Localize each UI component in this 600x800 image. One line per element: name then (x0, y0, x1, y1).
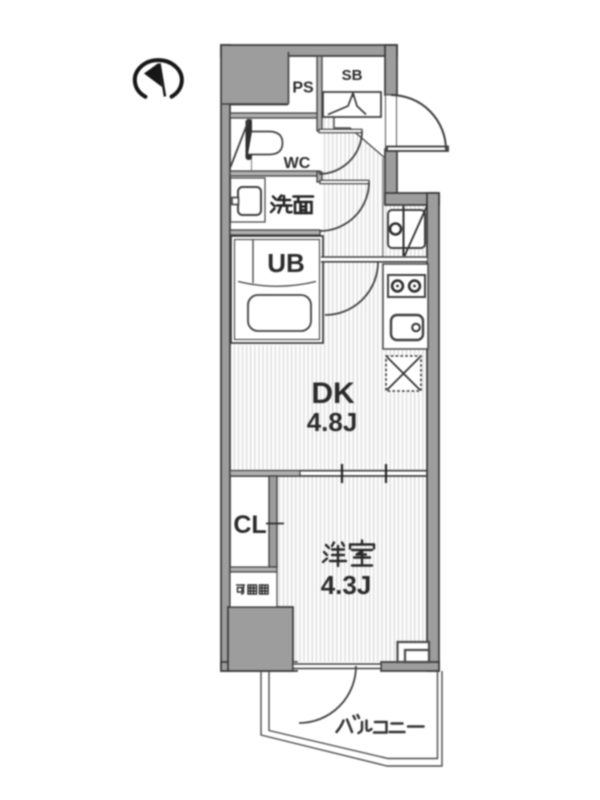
svg-text:UB: UB (267, 248, 305, 278)
svg-text:DK: DK (311, 377, 355, 410)
svg-text:CL: CL (233, 511, 266, 539)
svg-text:4.8J: 4.8J (307, 407, 358, 437)
svg-text:4.3J: 4.3J (321, 570, 372, 600)
svg-text:WC: WC (284, 155, 311, 172)
svg-text:PS: PS (292, 80, 314, 97)
svg-text:SB: SB (342, 67, 363, 84)
